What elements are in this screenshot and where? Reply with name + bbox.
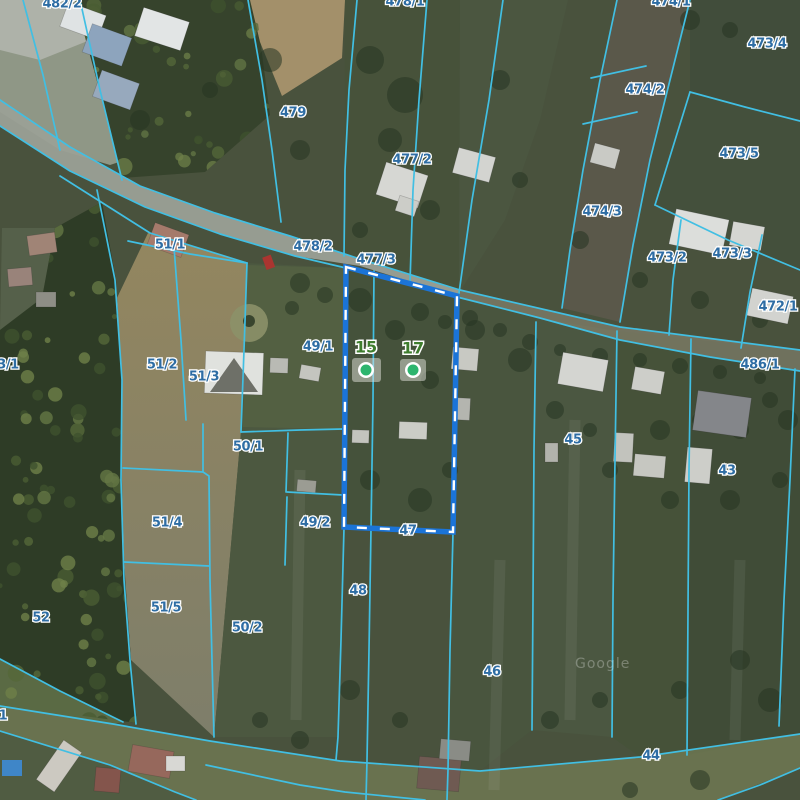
parcel-label: 3/1 xyxy=(0,358,19,373)
building-footprint xyxy=(27,232,58,256)
parcel-label: 478/1 xyxy=(386,0,425,10)
building-footprint xyxy=(692,390,751,437)
building-footprint xyxy=(7,267,32,287)
building-footprint xyxy=(36,292,56,307)
parcel-label: 47 xyxy=(399,524,417,539)
parcel-label: 477/2 xyxy=(393,153,432,168)
parcel-label: 50/1 xyxy=(233,440,264,455)
parcel-label: 51/1 xyxy=(155,238,186,253)
building-footprint xyxy=(545,443,558,462)
parcel-label: 51/5 xyxy=(151,601,182,616)
parcel-label: 49/1 xyxy=(303,340,334,355)
building-footprint xyxy=(299,364,321,381)
building-footprint xyxy=(633,454,666,479)
building-footprint xyxy=(613,433,633,463)
building-footprint xyxy=(399,422,428,440)
parcel-label: 473/2 xyxy=(648,251,687,266)
parcel-label: 1 xyxy=(0,709,8,724)
parcel-label: 51/2 xyxy=(147,358,177,373)
parcel-label: 474/2 xyxy=(626,83,665,98)
address-marker[interactable]: 17 xyxy=(400,339,426,382)
parcel-label: 479 xyxy=(280,106,306,121)
building-footprint xyxy=(297,479,317,493)
parcel-label: 474/1 xyxy=(652,0,691,10)
address-dot[interactable] xyxy=(408,365,419,376)
building-footprint xyxy=(631,367,665,395)
address-number-label: 15 xyxy=(355,338,377,357)
address-number-label: 17 xyxy=(402,339,424,358)
building-footprint xyxy=(270,358,289,374)
parcel-label: 473/3 xyxy=(713,247,752,262)
parcel-label: 52 xyxy=(32,611,49,626)
parcel-label: 48 xyxy=(349,584,367,599)
building-footprint xyxy=(439,739,471,762)
parcel-label: 486/1 xyxy=(741,358,780,373)
parcel-label: 473/5 xyxy=(720,147,759,162)
parcel-label: 478/2 xyxy=(294,240,333,255)
imagery-attribution: Google xyxy=(575,656,630,672)
parcel-label: 472/1 xyxy=(759,300,798,315)
aerial-background xyxy=(0,0,800,800)
parcel-label: 44 xyxy=(642,749,660,764)
building-footprint xyxy=(417,756,462,792)
parcel-label: 49/2 xyxy=(300,516,330,531)
pool xyxy=(2,760,22,776)
parcel-label: 51/3 xyxy=(189,370,220,385)
address-dot[interactable] xyxy=(361,365,372,376)
parcel-label: 473/4 xyxy=(748,37,787,52)
parcel-label: 43 xyxy=(718,464,736,479)
parcel-label: 477/3 xyxy=(357,253,396,268)
parcel-label: 50/2 xyxy=(232,621,262,636)
parcel-label: 482/2 xyxy=(43,0,82,12)
parcel-label: 46 xyxy=(483,665,501,680)
parcel-label: 474/3 xyxy=(583,205,622,220)
parcel-label: 51/4 xyxy=(152,516,183,531)
building-footprint xyxy=(94,767,121,793)
map-canvas[interactable]: Google 482/2478/1474/1479473/4474/2473/5… xyxy=(0,0,800,800)
building-footprint xyxy=(352,430,369,444)
building-footprint xyxy=(166,756,185,771)
parcel-label: 45 xyxy=(564,433,582,448)
address-marker[interactable]: 15 xyxy=(352,338,381,383)
